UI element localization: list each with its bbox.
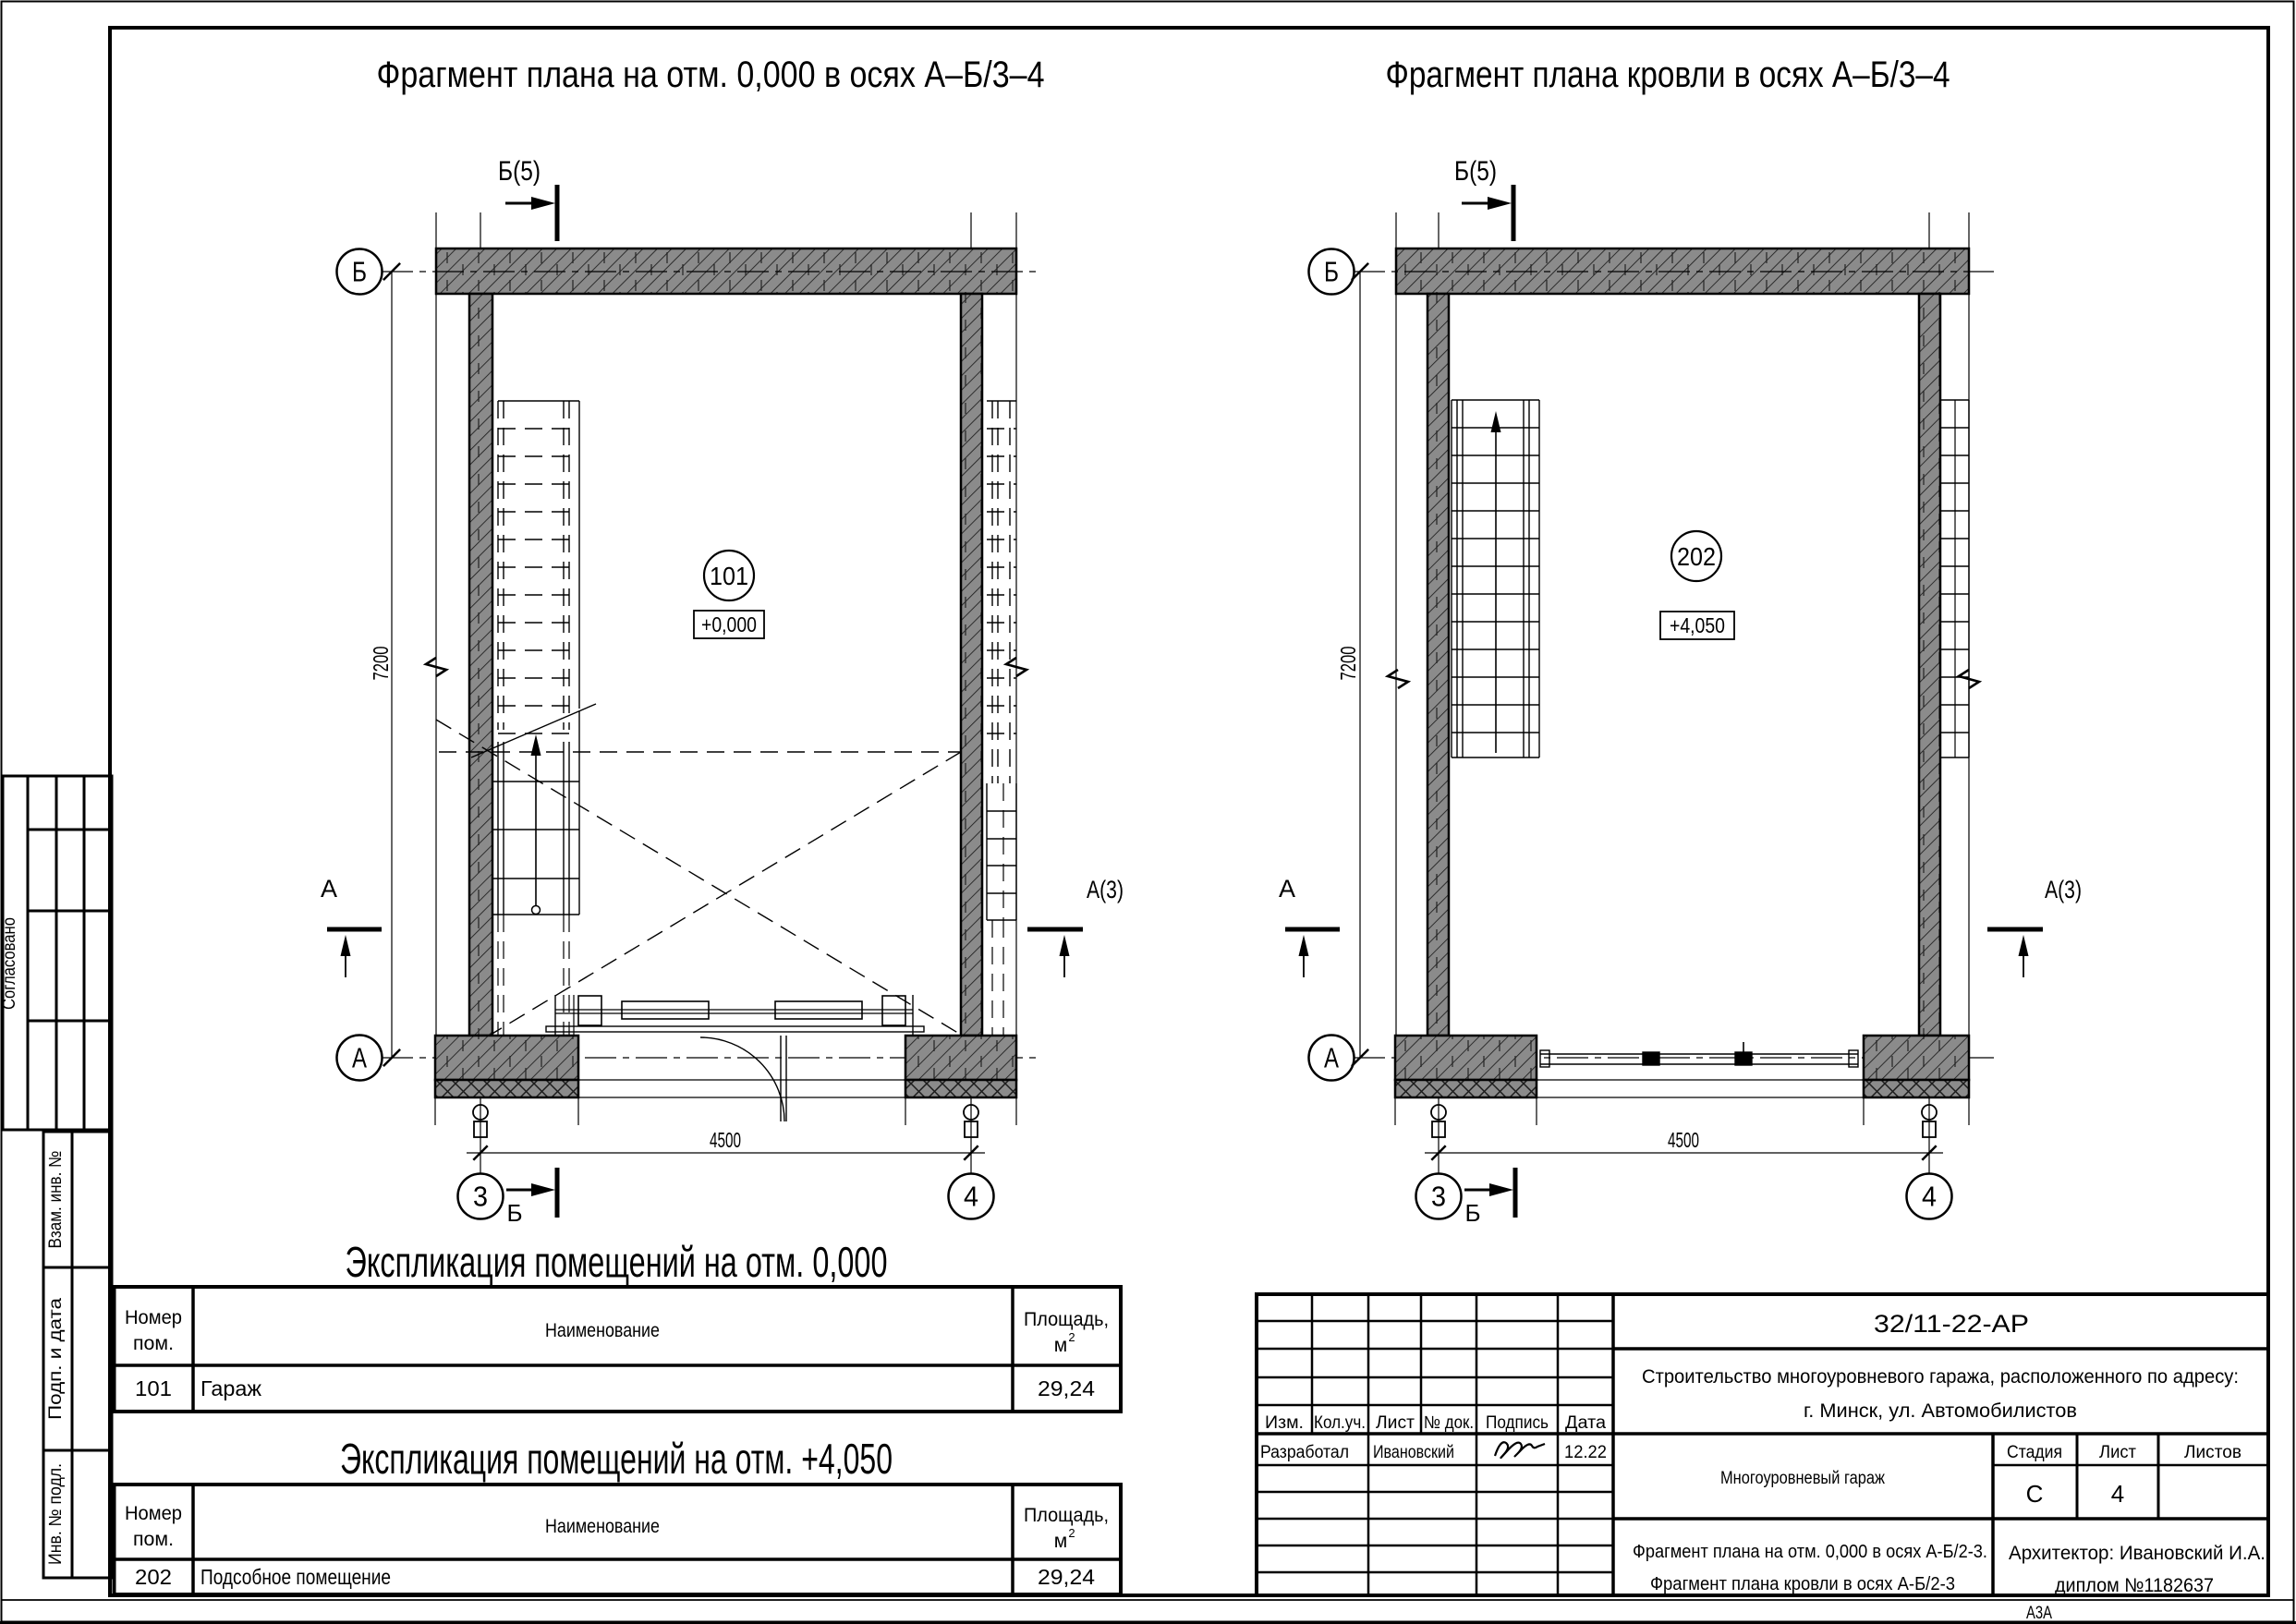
svg-text:Б: Б	[506, 1199, 522, 1227]
svg-text:Лист: Лист	[1376, 1413, 1415, 1433]
svg-text:Согласовано: Согласовано	[0, 917, 19, 1010]
svg-text:Фрагмент плана на отм. 0,000 в: Фрагмент плана на отм. 0,000 в осях А–Б/…	[377, 55, 1045, 95]
svg-text:Подсобное помещение: Подсобное помещение	[200, 1565, 391, 1589]
svg-text:Экспликация помещений на отм.: Экспликация помещений на отм. 0,000	[346, 1238, 888, 1286]
svg-text:12.22: 12.22	[1564, 1443, 1607, 1462]
svg-text:Экспликация помещений на отм.: Экспликация помещений на отм. +4,050	[340, 1435, 893, 1483]
svg-text:29,24: 29,24	[1038, 1376, 1095, 1400]
svg-text:29,24: 29,24	[1038, 1565, 1095, 1589]
svg-text:4: 4	[2111, 1480, 2124, 1508]
svg-text:3: 3	[473, 1181, 488, 1213]
svg-text:Гараж: Гараж	[200, 1376, 262, 1400]
svg-text:4500: 4500	[710, 1128, 741, 1152]
svg-text:202: 202	[135, 1565, 172, 1589]
svg-text:202: 202	[1677, 542, 1716, 571]
svg-text:2: 2	[1068, 1330, 1075, 1344]
svg-text:Подп. и дата: Подп. и дата	[46, 1297, 66, 1420]
svg-text:32/11-22-АР: 32/11-22-АР	[1874, 1310, 2029, 1338]
svg-text:Площадь,: Площадь,	[1024, 1309, 1109, 1330]
svg-text:А3А: А3А	[2026, 1604, 2052, 1623]
svg-text:Б: Б	[352, 256, 367, 288]
svg-text:Номер: Номер	[125, 1307, 182, 1328]
svg-text:Лист: Лист	[2099, 1443, 2136, 1462]
svg-text:Наименование: Наименование	[545, 1516, 660, 1537]
svg-text:Изм.: Изм.	[1265, 1413, 1304, 1433]
svg-text:№ док.: № док.	[1424, 1413, 1474, 1433]
svg-text:101: 101	[135, 1376, 172, 1400]
svg-text:Стадия: Стадия	[2007, 1443, 2062, 1462]
svg-text:Строительство многоуровневого: Строительство многоуровневого гаража, ра…	[1642, 1366, 2239, 1388]
svg-text:Площадь,: Площадь,	[1024, 1505, 1109, 1526]
svg-text:Взам. инв. №: Взам. инв. №	[46, 1151, 66, 1249]
svg-text:А(3): А(3)	[1087, 876, 1124, 903]
svg-text:7200: 7200	[1336, 647, 1360, 681]
svg-text:А: А	[1279, 875, 1295, 903]
svg-text:А: А	[321, 875, 337, 903]
svg-text:Подпись: Подпись	[1486, 1413, 1549, 1433]
svg-text:Б: Б	[1324, 256, 1339, 288]
svg-text:+0,000: +0,000	[701, 612, 757, 636]
svg-text:м: м	[1054, 1531, 1067, 1552]
svg-text:Архитектор: Ивановский И.А.: Архитектор: Ивановский И.А.	[2009, 1543, 2266, 1564]
svg-text:2: 2	[1068, 1526, 1075, 1540]
svg-text:Фрагмент плана кровли в осях А: Фрагмент плана кровли в осях А-Б/2-3	[1650, 1574, 1955, 1594]
svg-text:+4,050: +4,050	[1670, 613, 1725, 637]
svg-text:Б(5): Б(5)	[498, 156, 541, 187]
svg-text:Инв. № подл.: Инв. № подл.	[46, 1463, 66, 1565]
svg-text:4: 4	[1922, 1181, 1937, 1213]
svg-text:Фрагмент плана кровли в осях А: Фрагмент плана кровли в осях А–Б/3–4	[1386, 55, 1950, 95]
svg-text:Ивановский: Ивановский	[1373, 1443, 1454, 1462]
svg-text:Дата: Дата	[1565, 1413, 1606, 1433]
svg-text:Многоуровневый гараж: Многоуровневый гараж	[1720, 1469, 1885, 1488]
svg-text:Б(5): Б(5)	[1454, 156, 1497, 187]
svg-text:пом.: пом.	[133, 1529, 174, 1550]
svg-text:Кол.уч.: Кол.уч.	[1314, 1413, 1366, 1433]
svg-text:7200: 7200	[369, 647, 393, 681]
svg-text:С: С	[2026, 1480, 2044, 1508]
svg-text:Листов: Листов	[2184, 1443, 2241, 1462]
svg-text:Номер: Номер	[125, 1503, 182, 1524]
svg-text:г. Минск, ул. Автомобилистов: г. Минск, ул. Автомобилистов	[1804, 1400, 2077, 1422]
svg-text:101: 101	[710, 562, 748, 590]
svg-text:А: А	[352, 1042, 367, 1074]
svg-text:Наименование: Наименование	[545, 1320, 660, 1341]
svg-text:А(3): А(3)	[2045, 876, 2082, 903]
svg-text:диплом №1182637: диплом №1182637	[2055, 1575, 2214, 1596]
svg-text:пом.: пом.	[133, 1333, 174, 1354]
svg-text:Б: Б	[1464, 1199, 1480, 1227]
svg-text:4500: 4500	[1668, 1128, 1699, 1152]
svg-text:Фрагмент плана на отм. 0,000 в: Фрагмент плана на отм. 0,000 в осях А-Б/…	[1633, 1542, 1987, 1562]
svg-text:А: А	[1324, 1042, 1339, 1074]
svg-text:Разработал: Разработал	[1260, 1443, 1349, 1462]
svg-text:4: 4	[964, 1181, 978, 1213]
svg-text:м: м	[1054, 1335, 1067, 1356]
svg-text:3: 3	[1431, 1181, 1446, 1213]
